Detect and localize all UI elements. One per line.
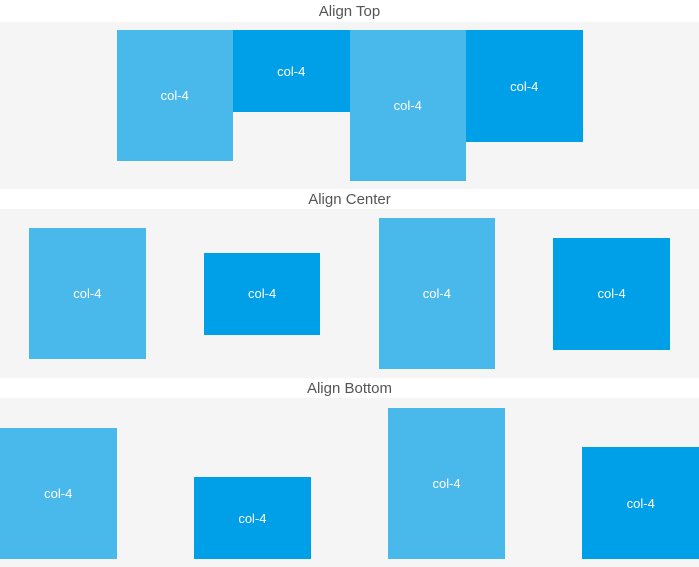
col-4-label: col-4 xyxy=(277,65,305,78)
col-4-box: col-4 xyxy=(29,228,146,359)
section-title: Align Bottom xyxy=(307,381,392,396)
flex-row-align-bottom: col-4 col-4 col-4 col-4 xyxy=(0,398,699,567)
col-4-label: col-4 xyxy=(432,477,460,490)
col-4-box: col-4 xyxy=(553,238,670,350)
col-4-box: col-4 xyxy=(379,218,496,369)
col-4-label: col-4 xyxy=(161,89,189,102)
col-4-box: col-4 xyxy=(204,253,321,335)
col-4-box: col-4 xyxy=(350,30,467,181)
col-4-box: col-4 xyxy=(117,30,234,161)
col-4-box: col-4 xyxy=(233,30,350,112)
col-4-label: col-4 xyxy=(394,99,422,112)
col-4-label: col-4 xyxy=(44,487,72,500)
flex-row-align-center: col-4 col-4 col-4 col-4 xyxy=(0,209,699,378)
flex-row-align-top: col-4 col-4 col-4 col-4 xyxy=(0,22,699,189)
col-4-label: col-4 xyxy=(423,287,451,300)
col-4-box: col-4 xyxy=(582,447,699,559)
col-4-box: col-4 xyxy=(466,30,583,142)
col-4-label: col-4 xyxy=(248,287,276,300)
col-4-box: col-4 xyxy=(0,428,117,559)
section-title: Align Center xyxy=(308,192,391,207)
col-4-label: col-4 xyxy=(598,287,626,300)
section-header-align-center: Align Center xyxy=(0,189,699,209)
section-header-align-top: Align Top xyxy=(0,0,699,22)
col-4-label: col-4 xyxy=(627,497,655,510)
section-header-align-bottom: Align Bottom xyxy=(0,378,699,398)
col-4-box: col-4 xyxy=(388,408,505,559)
col-4-label: col-4 xyxy=(73,287,101,300)
grid-alignment-demo-page: Align Top col-4 col-4 col-4 col-4 Align … xyxy=(0,0,699,567)
col-4-label: col-4 xyxy=(510,80,538,93)
col-4-label: col-4 xyxy=(238,512,266,525)
section-title: Align Top xyxy=(319,4,380,19)
col-4-box: col-4 xyxy=(194,477,311,559)
